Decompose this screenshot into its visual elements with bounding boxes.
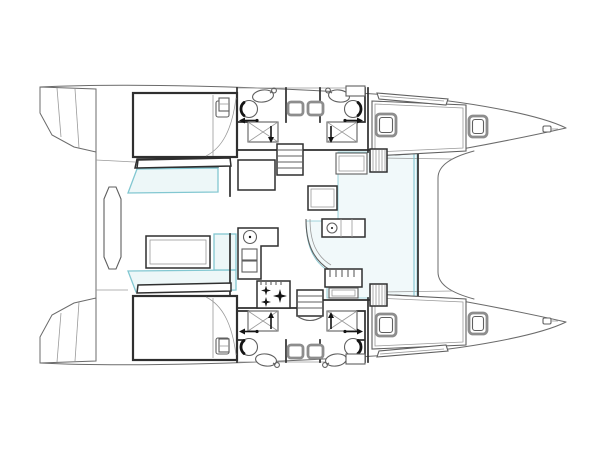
bridgedeck-front-edge <box>438 151 474 299</box>
cabin-window-strip <box>137 283 231 293</box>
starboard-fwd-sink <box>323 353 348 368</box>
port-aft-shower <box>248 122 278 142</box>
deck-hatch-cabin <box>376 314 396 336</box>
fitting-box <box>219 98 229 111</box>
nav-cabinet <box>238 160 275 190</box>
starboard-fwd-toilet <box>345 339 362 356</box>
catamaran-floorplan <box>0 0 600 450</box>
sink-tap <box>275 363 280 368</box>
port-hull-staircase <box>277 144 303 175</box>
port-cockpit-bench <box>128 168 218 193</box>
wardrobe-box <box>370 284 387 306</box>
port-aft-toilet <box>241 101 258 118</box>
galley <box>238 228 290 308</box>
stair-frame <box>277 144 303 175</box>
starboard-transom-steps <box>40 298 96 363</box>
deck-box <box>346 86 365 96</box>
deck-hatch-foredeck <box>469 313 487 334</box>
counter-sink-drain <box>331 227 333 229</box>
salon-interior <box>238 144 367 321</box>
arrow-right-hinge <box>343 330 346 333</box>
starboard-step-line-1 <box>57 313 61 362</box>
starboard-aft-shower <box>248 311 278 331</box>
sink-basin <box>325 353 347 368</box>
sink-basin <box>252 89 274 104</box>
galley-appliance-2 <box>242 261 257 272</box>
bench-seat <box>329 288 358 298</box>
starboard-hull-staircase <box>297 290 323 321</box>
corridor-hatch-left <box>288 102 303 115</box>
cabin-window-strip <box>137 158 231 168</box>
corridor-hatch-right <box>308 345 323 358</box>
side-counter <box>322 219 365 237</box>
deck-box <box>346 354 365 364</box>
stove-top <box>257 281 290 308</box>
starboard-bow-cleat <box>543 318 551 324</box>
port-fwd-toilet <box>345 101 362 118</box>
starboard-step-line-2 <box>75 302 79 361</box>
port-transom-steps <box>40 87 96 152</box>
deck-hatch-foredeck <box>469 116 487 137</box>
galley-appliance-1 <box>242 249 257 260</box>
port-step-line-2 <box>75 89 79 148</box>
arrow-left-head <box>239 329 245 335</box>
wardrobe <box>370 149 387 172</box>
entry-bench <box>325 269 362 298</box>
starboard-aft-sink <box>255 353 280 368</box>
cockpit-table <box>146 236 210 268</box>
wardrobe-box <box>370 149 387 172</box>
galley-sink-drain <box>249 236 251 238</box>
deck-fitting <box>219 339 229 352</box>
starboard-aft-toilet <box>241 339 258 356</box>
arrow-right-head <box>357 329 363 335</box>
wardrobe <box>370 284 387 306</box>
settee-arm <box>214 234 236 270</box>
fitting-box <box>219 339 229 352</box>
port-step-line-1 <box>57 88 61 137</box>
arrow-left-hinge <box>255 330 258 333</box>
stair-frame <box>297 290 323 316</box>
deck-hatch-cabin <box>376 114 396 136</box>
stove <box>257 281 290 308</box>
port-deck-line <box>96 160 135 162</box>
corridor-hatch-right <box>308 102 323 115</box>
port-bow-cleat <box>543 126 551 132</box>
arrow-left-hinge <box>255 119 258 122</box>
counter-top <box>322 219 365 237</box>
arrow-right-hinge <box>343 119 346 122</box>
corridor-hatch-left <box>288 345 303 358</box>
sink-basin <box>255 353 277 368</box>
port-aft-sink <box>252 88 277 103</box>
stern-platforms <box>40 87 121 363</box>
sink-tap <box>323 363 328 368</box>
salon-table <box>308 186 337 210</box>
deck-fitting <box>219 98 229 111</box>
floorplan-svg <box>0 0 600 450</box>
aft-helm-bench <box>104 187 121 269</box>
